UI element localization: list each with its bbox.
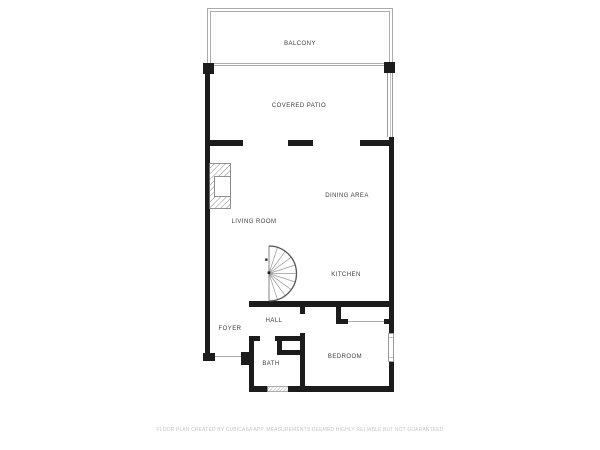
room-label-kitchen: KITCHEN (331, 272, 361, 278)
room-label-bath: BATH (262, 361, 279, 367)
bottom-wall-right (288, 386, 394, 392)
closet-foot-wall (336, 319, 348, 324)
entry-door-post (241, 352, 252, 365)
window-tick-top (389, 337, 393, 338)
left-exterior-wall (205, 64, 210, 360)
bath-window-hatched (267, 386, 289, 392)
closet-opening-line (348, 321, 384, 322)
utility-shaft-bottom-wall (277, 350, 305, 355)
room-label-balcony: BALCONY (284, 41, 316, 47)
room-label-foyer: FOYER (219, 326, 242, 332)
patio-living-wall-left (205, 140, 243, 146)
right-exterior-wall-upper (389, 137, 394, 306)
disclaimer-text: FLOOR PLAN CREATED BY CUBICASA APP. MEAS… (0, 427, 600, 433)
closet-right-wall (384, 319, 394, 324)
bedroom-window (388, 333, 394, 362)
spiral-staircase-icon (240, 244, 300, 304)
patio-post-right (384, 62, 395, 73)
bath-top-wall-left (249, 336, 260, 341)
window-tick-bottom (389, 357, 393, 358)
room-label-living-room: LIVING ROOM (232, 219, 277, 225)
patio-screen-window (387, 73, 393, 137)
floor-plan-canvas: BALCONY COVERED PATIO DINING AREA LIVING… (0, 0, 600, 450)
balcony-railing-inner (210, 11, 390, 64)
window-mullion-line (390, 73, 391, 137)
patio-living-wall-center (288, 140, 313, 146)
room-label-dining-area: DINING AREA (325, 193, 369, 199)
room-label-hall: HALL (266, 318, 283, 324)
room-label-bedroom: BEDROOM (328, 354, 362, 360)
hall-bedroom-wall (300, 333, 305, 392)
entry-door-opening-line (215, 356, 241, 357)
bedroom-door-stub (300, 307, 305, 314)
foyer-corner-post (203, 353, 215, 361)
fireplace-icon (209, 163, 231, 209)
room-label-covered-patio: COVERED PATIO (272, 103, 326, 109)
